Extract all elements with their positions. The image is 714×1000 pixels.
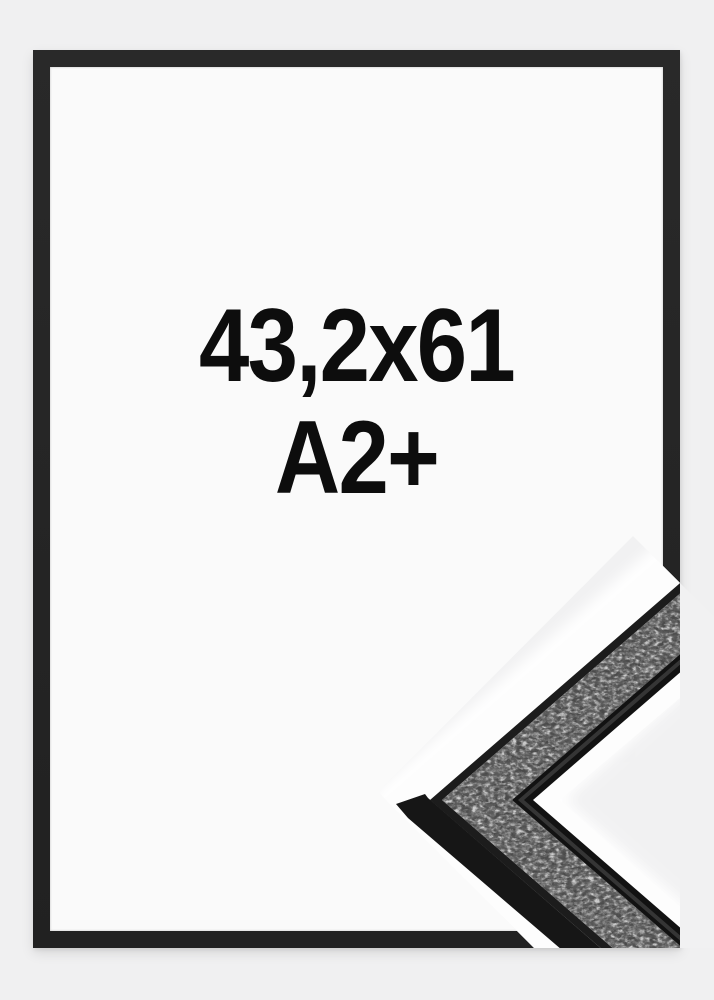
product-image-canvas: 43,2x61 A2+ (0, 0, 714, 1000)
frame-corner-sample-image (0, 0, 714, 1000)
